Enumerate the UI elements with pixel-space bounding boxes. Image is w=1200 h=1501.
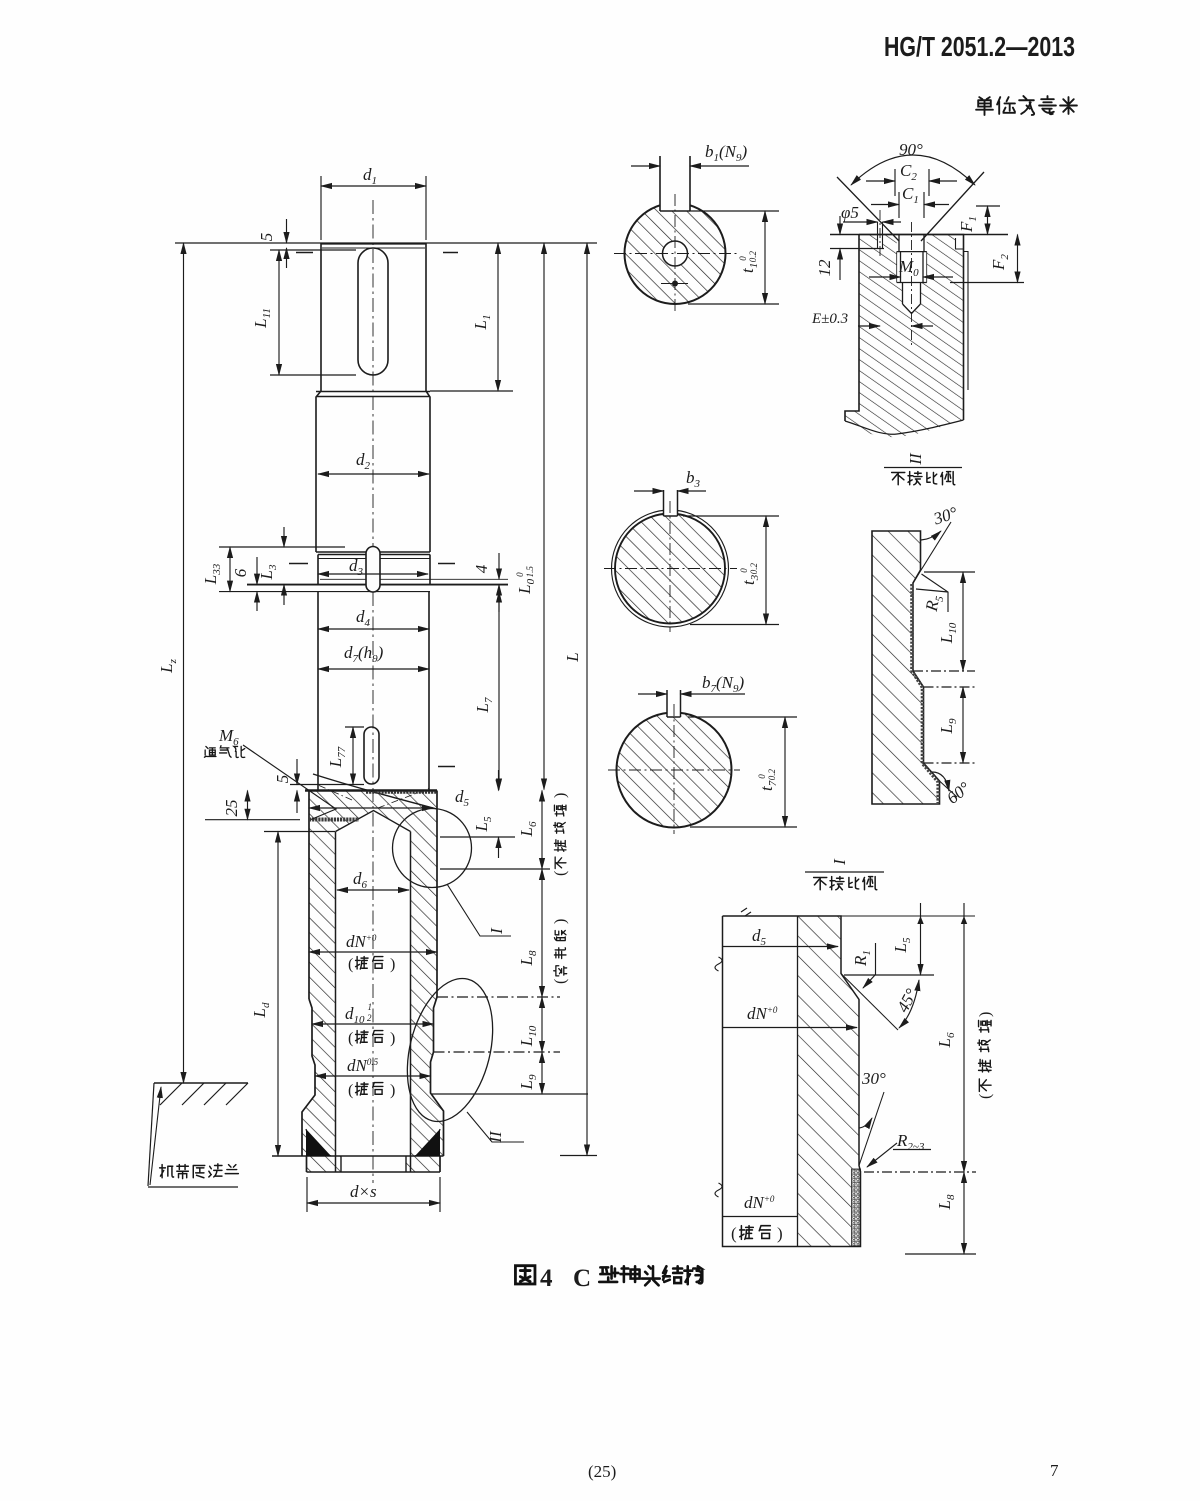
- svg-text:30°: 30°: [861, 1069, 886, 1088]
- svg-text:E±0.3: E±0.3: [811, 311, 848, 327]
- svg-text:d×s: d×s: [350, 1182, 377, 1201]
- svg-text:b1(N9): b1(N9): [705, 142, 748, 164]
- svg-text:HG/T 2051.2—2013: HG/T 2051.2—2013: [884, 31, 1075, 62]
- svg-text:d7(h9): d7(h9): [344, 643, 384, 665]
- svg-text:): ): [390, 1030, 395, 1047]
- svg-text:): ): [390, 1082, 395, 1099]
- svg-text:(: (: [348, 1030, 353, 1047]
- svg-text:25: 25: [222, 800, 241, 817]
- svg-text:(: (: [552, 979, 569, 984]
- svg-text:): ): [977, 1012, 994, 1017]
- svg-text:L: L: [563, 652, 582, 662]
- svg-text:): ): [390, 956, 395, 973]
- svg-text:(: (: [977, 1094, 994, 1099]
- svg-text:12: 12: [815, 259, 834, 277]
- svg-text:C: C: [573, 1265, 591, 1292]
- svg-text:4: 4: [472, 564, 491, 573]
- svg-text:5: 5: [257, 233, 276, 242]
- svg-text:(: (: [731, 1224, 737, 1243]
- svg-text:7: 7: [1050, 1461, 1059, 1480]
- svg-text:4: 4: [540, 1265, 553, 1292]
- svg-text:II: II: [906, 452, 925, 466]
- svg-text:90°: 90°: [899, 140, 923, 159]
- svg-text:φ5: φ5: [841, 203, 859, 222]
- svg-text:(: (: [348, 1082, 353, 1099]
- svg-text:): ): [552, 919, 569, 924]
- svg-text:(25): (25): [588, 1462, 616, 1481]
- svg-text:): ): [777, 1224, 783, 1243]
- svg-text:II: II: [486, 1130, 505, 1144]
- svg-text:5: 5: [273, 775, 292, 784]
- svg-text:): ): [552, 793, 569, 798]
- svg-text:(: (: [348, 956, 353, 973]
- svg-text:b7(N9): b7(N9): [702, 673, 745, 695]
- svg-text:6: 6: [231, 568, 250, 577]
- svg-text:(: (: [552, 871, 569, 876]
